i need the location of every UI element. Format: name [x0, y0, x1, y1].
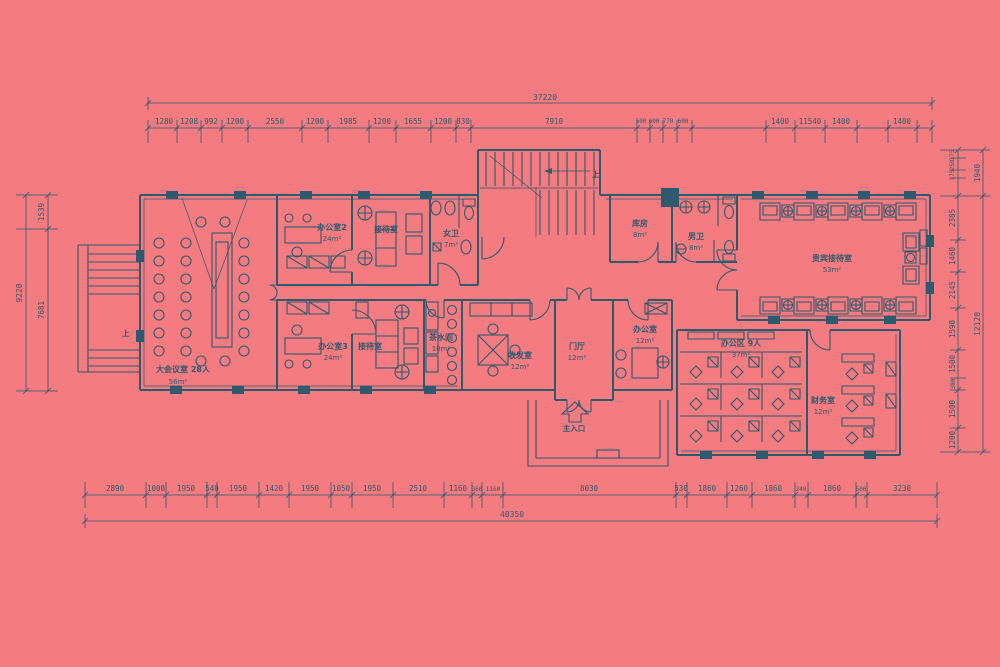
dimension-right: 175 250 175 2385 1460 2145 1590 1500 380…	[940, 147, 990, 455]
open-office-room: 办公区 9人 37m²	[680, 332, 802, 442]
dim-top-5: 1200	[306, 117, 325, 126]
dim-top-total: 37220	[533, 93, 557, 102]
dim-right-3: 2385	[948, 209, 957, 227]
dim-bottom-6: 1950	[301, 484, 320, 493]
dim-left-1: 7681	[37, 301, 46, 319]
dim-bottom-14: 530	[674, 484, 688, 493]
vip-sofa-row-bottom	[760, 297, 916, 314]
room-name-lobby: 门厅	[569, 341, 585, 351]
room-area-office3: 24m²	[324, 354, 343, 362]
room-area-mens-wc: 8m²	[689, 244, 703, 252]
room-name-reception-top: 接待室	[374, 224, 398, 234]
dim-top-13: 600	[649, 118, 660, 125]
dim-bottom-1: 1000	[147, 484, 166, 493]
dim-top-19: 1400	[893, 117, 912, 126]
dim-bottom-12: 1160	[486, 486, 501, 493]
dim-bottom-18: 240	[796, 486, 807, 493]
wall-column-marks	[136, 188, 934, 459]
dim-top-12: 500	[636, 118, 647, 125]
room-name-office2: 办公室2	[317, 222, 347, 232]
dim-top-1: 1208	[180, 117, 199, 126]
lobby-room: 门厅 12m²	[568, 341, 587, 362]
room-name-reception-bottom: 接待室	[358, 341, 382, 351]
dim-top-10: 830	[456, 117, 470, 126]
up-label-top: 上	[592, 169, 600, 179]
dim-left-0: 1539	[37, 203, 46, 221]
room-name-storage: 库房	[632, 218, 648, 228]
dimension-top: 37220 1280 1208 992 1200 2550 1200 1985 …	[145, 93, 935, 143]
dim-top-0: 1280	[155, 117, 174, 126]
dim-bottom-13: 8030	[580, 484, 599, 493]
dim-right-1: 250	[949, 159, 956, 170]
dim-right-outer-0: 1940	[973, 163, 982, 182]
room-name-womens-wc: 女卫	[443, 228, 459, 238]
dim-top-9: 1200	[434, 117, 453, 126]
dim-bottom-15: 1860	[698, 484, 717, 493]
dim-top-2: 992	[204, 117, 218, 126]
room-area-open-office: 37m²	[732, 351, 751, 359]
dim-bottom-0: 2890	[106, 484, 125, 493]
dim-top-11: 7910	[545, 117, 564, 126]
staircase-top: 上	[480, 152, 600, 237]
reception-top-room: 接待室	[358, 206, 422, 266]
dim-top-15: 600	[678, 118, 689, 125]
room-area-vip: 53m²	[823, 266, 842, 274]
dim-bottom-8: 1950	[363, 484, 382, 493]
dim-right-7: 1500	[948, 354, 957, 373]
office2-room: 办公室2 24m²	[285, 214, 347, 268]
storage-room: 库房 8m²	[632, 218, 648, 239]
finance-room: 财务室 12m²	[810, 354, 896, 444]
dim-right-0: 175	[949, 149, 956, 160]
staircase-left: 上	[78, 245, 140, 372]
floor-plan-canvas: 37220 1280 1208 992 1200 2550 1200 1985 …	[0, 0, 1000, 667]
room-name-conference: 大会议室 28人	[156, 364, 211, 374]
dim-right-5: 2145	[948, 281, 957, 299]
dim-bottom-17: 1860	[764, 484, 783, 493]
mens-wc-room: 男卫 8m²	[676, 195, 735, 262]
room-area-finance: 12m²	[814, 408, 833, 416]
dim-top-7: 1200	[373, 117, 392, 126]
dim-top-14: 770	[663, 118, 674, 125]
dim-bottom-19: 1860	[823, 484, 842, 493]
room-area-mail: 12m²	[511, 363, 530, 371]
cubicle-desks	[690, 357, 800, 442]
dim-bottom-9: 2510	[409, 484, 428, 493]
dimension-bottom: 40350 2890 1000 1950 540 1950 1420 1950 …	[82, 482, 940, 528]
dim-left-total: 9220	[15, 283, 24, 302]
room-name-office3: 办公室3	[318, 341, 348, 351]
dim-top-8: 1655	[404, 117, 422, 126]
dim-bottom-20: 500	[856, 486, 867, 493]
room-name-mens-wc: 男卫	[688, 232, 704, 241]
dim-top-4: 2550	[266, 117, 285, 126]
room-area-office-center: 12m²	[636, 337, 655, 345]
dim-top-6: 1985	[339, 117, 357, 126]
dim-bottom-16: 1260	[730, 484, 749, 493]
dim-bottom-total: 40350	[500, 510, 524, 519]
dim-right-6: 1590	[948, 319, 957, 338]
room-area-lobby: 12m²	[568, 354, 587, 362]
dim-bottom-4: 1950	[229, 484, 248, 493]
dimension-left: 9220 1539 7681	[15, 192, 58, 394]
dim-right-9: 1500	[948, 399, 957, 418]
room-name-tea: 茶水间	[428, 332, 453, 342]
dim-right-outer-1: 12120	[973, 312, 982, 336]
room-area-office2: 24m²	[323, 235, 342, 243]
room-name-finance: 财务室	[810, 395, 835, 405]
dim-right-2: 175	[949, 169, 956, 180]
womens-wc-room: 女卫 7m²	[431, 195, 475, 254]
dim-right-10: 1200	[948, 430, 957, 449]
office-center-room: 办公室 12m²	[616, 303, 669, 378]
dim-top-18: 1400	[832, 117, 851, 126]
room-name-open-office: 办公区 9人	[721, 338, 762, 348]
dim-bottom-5: 1420	[265, 484, 284, 493]
floor-plan-drawing: 37220 1280 1208 992 1200 2550 1200 1985 …	[0, 0, 1000, 667]
dim-bottom-21: 3230	[893, 484, 912, 493]
room-name-mail: 收发室	[508, 350, 532, 360]
vip-sofa-side	[903, 230, 927, 284]
dim-right-4: 1460	[948, 246, 957, 265]
dim-bottom-2: 1950	[177, 484, 196, 493]
dim-bottom-10: 1160	[449, 484, 468, 493]
conference-chairs	[154, 217, 249, 366]
dim-top-16: 1400	[771, 117, 790, 126]
entrance-porch: 主入口	[528, 400, 668, 466]
conference-room: 大会议室 28人 56m²	[154, 198, 249, 386]
room-area-womens-wc: 7m²	[444, 241, 458, 249]
office3-room: 办公室3 24m²	[285, 302, 348, 368]
vip-sofa-row-top	[760, 203, 916, 220]
dim-top-17: 11540	[799, 117, 822, 126]
up-label-left: 上	[122, 328, 130, 338]
room-name-vip: 贵宾接待室	[812, 253, 852, 263]
dim-top-3: 1200	[226, 117, 245, 126]
tea-room: 茶水间 10m²	[426, 302, 457, 385]
room-area-storage: 8m²	[633, 231, 647, 239]
dim-bottom-11: 360	[472, 486, 483, 493]
mail-room: 收发室 12m²	[470, 303, 532, 376]
room-area-tea: 10m²	[432, 345, 451, 353]
dim-bottom-7: 1050	[332, 484, 351, 493]
room-name-office-center: 办公室	[633, 324, 657, 334]
room-area-conference: 56m²	[169, 378, 188, 386]
dim-right-8: 380	[950, 378, 957, 389]
dim-bottom-3: 540	[205, 484, 219, 493]
vip-reception-room: 贵宾接待室 53m²	[760, 203, 927, 314]
main-entrance-label: 主入口	[563, 423, 586, 433]
